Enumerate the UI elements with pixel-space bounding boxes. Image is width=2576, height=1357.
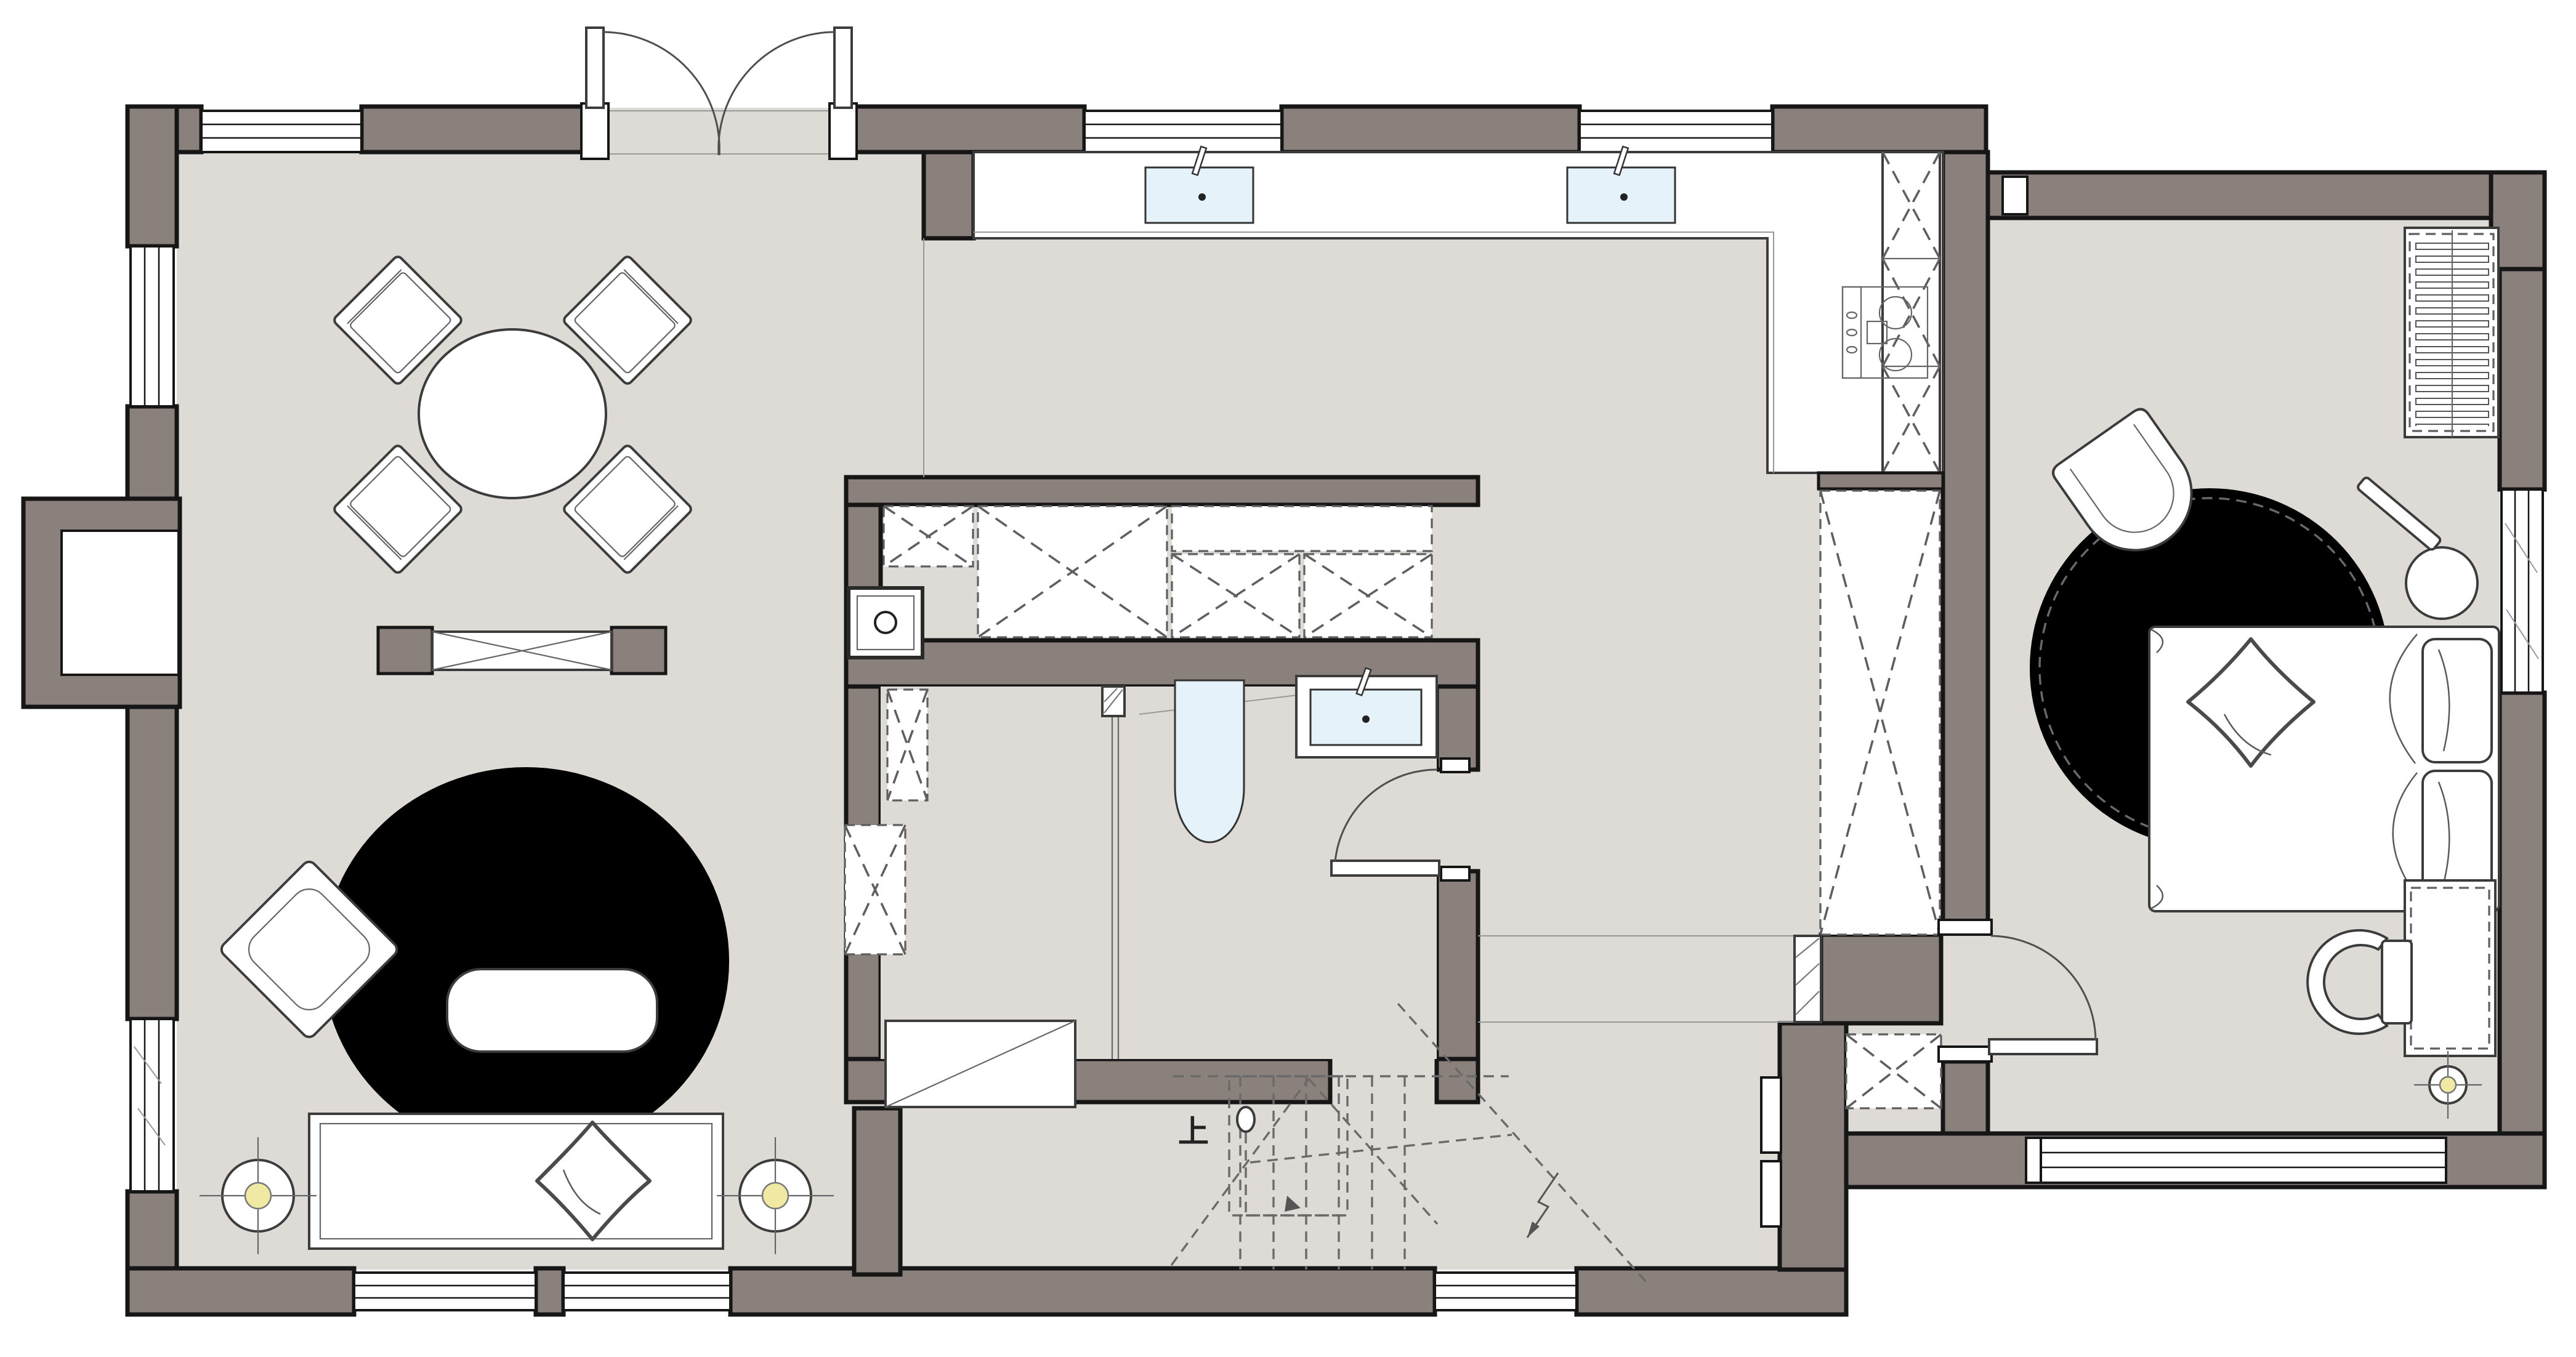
wall-left-corner: [127, 107, 177, 246]
door-jamb: [1939, 1047, 1992, 1061]
wall-bottom-mullion: [536, 1268, 563, 1315]
washing-machine: [849, 588, 923, 658]
wall-bedroom-top: [1988, 172, 2494, 218]
hatched-post: [1795, 936, 1821, 1022]
wall-kitchen-stub: [924, 152, 974, 238]
toilet: [1175, 680, 1244, 842]
door-jamb: [1939, 920, 1992, 935]
pillow-1: [2423, 639, 2492, 762]
wall-stub-stairs: [854, 1108, 900, 1274]
bath-door-leaf: [1331, 861, 1439, 876]
wall-top-4: [1282, 107, 1580, 152]
wall-bottom-3: [1577, 1268, 1846, 1315]
wall-left-2: [127, 406, 177, 499]
door-leaf-right: [834, 28, 852, 108]
window-left-1: [131, 246, 174, 406]
lamp-bulb-icon: [762, 1183, 788, 1209]
window-bedroom-bottom: [2040, 1138, 2446, 1183]
louver-wardrobe: [2405, 228, 2498, 437]
door-jamb-right: [830, 103, 857, 159]
pillow-2: [2423, 771, 2492, 894]
door-jamb-left: [581, 103, 608, 159]
under-stair-door: [1761, 1077, 1781, 1226]
stairs-up-label: 上: [1178, 1114, 1209, 1150]
floor-plan: 上: [0, 0, 2576, 1357]
jamb-bedroom-top: [2003, 177, 2027, 214]
window-stairs: [1435, 1273, 1577, 1310]
wall-kitchen-east-low: [1943, 1061, 1988, 1134]
wall-corridor-south: [1821, 935, 1941, 1023]
sofa: [309, 1114, 723, 1249]
lamp-bulb-icon: [245, 1183, 271, 1209]
corridor-cabinet: [1846, 1034, 1941, 1108]
wall-under-stairs: [1780, 1023, 1846, 1270]
wall-bottom-2: [730, 1268, 1435, 1315]
coffee-table: [447, 969, 657, 1052]
console-sideboard: [378, 627, 666, 674]
tall-wardrobe-cabinet: [1820, 491, 1940, 935]
wall-bottom-1: [127, 1268, 354, 1315]
window-top-3: [1580, 111, 1772, 152]
floor-plan-page: 上: [0, 0, 2576, 1357]
wall-top-5: [1772, 107, 1986, 152]
bench-cabinet: [886, 1021, 1075, 1107]
bedroom-vanity: [2405, 880, 2495, 1056]
column-base-wall: [1819, 473, 1943, 489]
dining-table: [419, 329, 606, 498]
window-top-1: [201, 111, 361, 152]
wall-left-3: [127, 707, 177, 1019]
bedroom-door-leaf: [1989, 1039, 2097, 1054]
side-table: [2406, 547, 2477, 619]
bay-window: [62, 531, 179, 675]
window-top-2: [1084, 111, 1282, 152]
double-bed: [2149, 627, 2499, 911]
storage-cabinet-small-1: [887, 690, 927, 800]
window-left-2: [131, 1019, 174, 1191]
vanity-sink: [1296, 668, 1437, 757]
window-bedroom-east: [2501, 489, 2543, 693]
window-bottom-1: [354, 1273, 536, 1310]
wall-top-2: [361, 107, 583, 152]
door-leaf-left: [586, 28, 604, 108]
wall-top-3: [854, 107, 1084, 152]
wall-bedroom-east-1: [2500, 269, 2545, 489]
wall-kitchen-east: [1943, 152, 1988, 933]
window-bottom-2: [563, 1273, 730, 1310]
jamb-bedroom-bottom: [2026, 1138, 2041, 1183]
lamp-bulb-icon: [2440, 1077, 2456, 1093]
stairs-start-marker: [1237, 1107, 1254, 1132]
storage-cabinet-small-2: [845, 825, 905, 954]
bay-projection: [23, 499, 180, 707]
wall-bedroom-east-2: [2500, 693, 2545, 1187]
